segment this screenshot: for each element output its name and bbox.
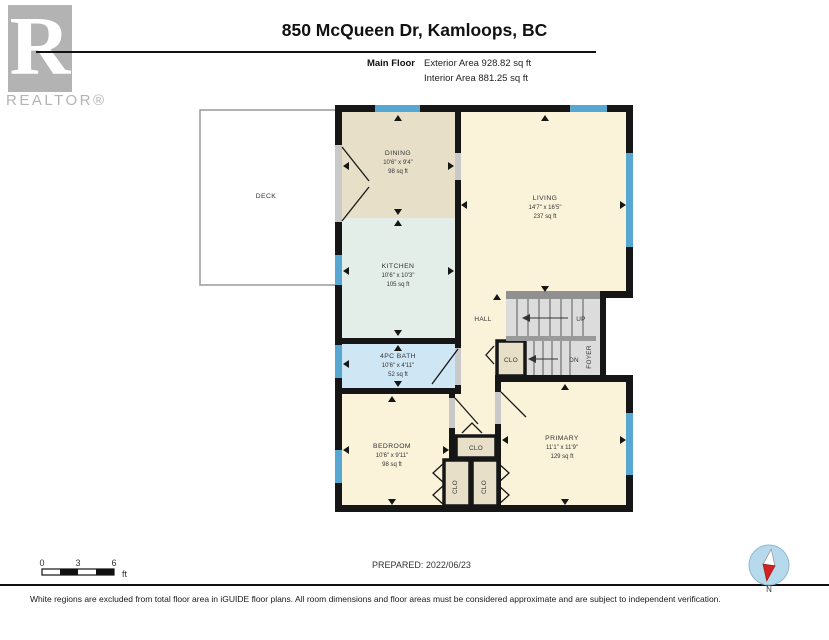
scale-bar-segment	[60, 569, 78, 575]
kitchen-dims: 10'6" x 10'3"	[382, 273, 415, 279]
floor-plan-page: R REALTOR® 850 McQueen Dr, Kamloops, BC …	[0, 0, 829, 640]
primary-area: 129 sq ft	[550, 454, 573, 460]
opening-primary-door	[495, 392, 501, 424]
bath-label: 4PC BATH	[380, 353, 416, 360]
closet-label: CLO	[504, 357, 518, 364]
wall	[335, 388, 461, 394]
dining-label: DINING	[385, 150, 411, 157]
scale-bar: 0 3 6 ft	[39, 558, 127, 579]
deck-label: DECK	[256, 193, 277, 200]
opening-bedroom-door	[449, 398, 455, 428]
compass-north-label: N	[766, 585, 772, 594]
bedroom-dims: 10'6" x 9'11"	[376, 453, 408, 459]
wall	[600, 291, 606, 382]
closet-label: CLO	[452, 480, 459, 494]
wall	[335, 338, 461, 344]
opening-dining-living	[455, 153, 461, 180]
scale-tick-0: 0	[39, 558, 44, 568]
living-dims: 14'7" x 16'5"	[529, 205, 562, 211]
opening-bath-door	[455, 348, 461, 385]
scale-tick-3: 3	[75, 558, 80, 568]
scale-unit: ft	[122, 569, 128, 579]
living-label: LIVING	[533, 195, 558, 202]
window	[335, 345, 342, 378]
window	[626, 153, 633, 247]
room-primary	[501, 382, 626, 505]
hall-label: HALL	[474, 316, 491, 323]
floor-plan-drawing: DECK DINING 10'6" x 9'4" 98 sq ft KITCHE…	[0, 0, 829, 640]
bath-area: 52 sq ft	[388, 372, 408, 378]
window	[335, 450, 342, 483]
compass: N	[749, 545, 789, 594]
kitchen-area: 105 sq ft	[386, 282, 409, 288]
bedroom-area: 98 sq ft	[382, 462, 402, 468]
closet-label: CLO	[481, 480, 488, 494]
opening-deck-door	[335, 145, 342, 222]
bath-dims: 10'6" x 4'11"	[382, 363, 414, 369]
closet-label: CLO	[469, 445, 483, 452]
stair-divider-bar	[506, 336, 596, 341]
room-living	[461, 112, 626, 292]
scale-tick-6: 6	[111, 558, 116, 568]
window	[626, 413, 633, 475]
primary-label: PRIMARY	[545, 435, 579, 442]
window	[335, 255, 342, 285]
window	[375, 105, 420, 112]
stairs-up-label: UP	[576, 316, 585, 323]
scale-bar-segment	[96, 569, 114, 575]
stairs-down-label: DN	[569, 357, 579, 364]
dining-dims: 10'6" x 9'4"	[383, 160, 413, 166]
primary-dims: 11'1" x 11'9"	[546, 445, 578, 451]
window	[570, 105, 607, 112]
dining-area: 98 sq ft	[388, 169, 408, 175]
living-area: 237 sq ft	[533, 214, 556, 220]
bedroom-label: BEDROOM	[373, 443, 411, 450]
stair-landing-bar	[506, 291, 600, 299]
foyer-label: FOYER	[586, 345, 593, 369]
kitchen-label: KITCHEN	[382, 263, 415, 270]
